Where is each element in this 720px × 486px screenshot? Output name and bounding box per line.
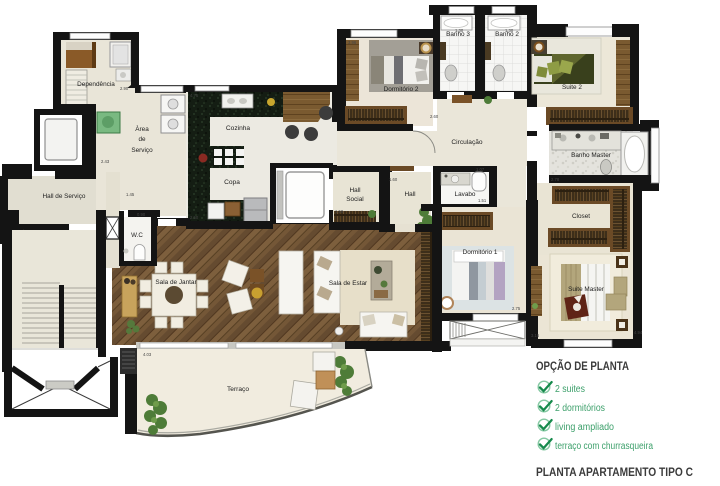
svg-text:Circulação: Circulação — [451, 139, 482, 146]
svg-text:Dependência: Dependência — [77, 81, 115, 88]
svg-text:OPÇÃO DE PLANTA: OPÇÃO DE PLANTA — [536, 360, 629, 373]
svg-text:2.90: 2.90 — [120, 86, 129, 91]
svg-text:1.07: 1.07 — [476, 167, 485, 172]
svg-text:living ampliado: living ampliado — [555, 422, 614, 433]
svg-text:Suite Master: Suite Master — [568, 286, 605, 293]
svg-text:Serviço: Serviço — [131, 147, 153, 154]
svg-text:Àrea: Àrea — [135, 124, 149, 133]
svg-text:2.78: 2.78 — [551, 177, 560, 182]
svg-text:PLANTA APARTAMENTO TIPO C: PLANTA APARTAMENTO TIPO C — [536, 465, 693, 479]
svg-text:Hall: Hall — [349, 187, 360, 194]
svg-text:Social: Social — [346, 196, 363, 203]
svg-text:0.90: 0.90 — [137, 212, 146, 217]
svg-text:Dormitório 2: Dormitório 2 — [384, 86, 419, 93]
svg-text:2.50: 2.50 — [190, 215, 199, 220]
svg-text:Hall: Hall — [404, 191, 415, 198]
svg-text:4.03: 4.03 — [143, 352, 152, 357]
svg-text:Sala de Estar: Sala de Estar — [329, 280, 368, 287]
svg-text:2 suites: 2 suites — [555, 384, 585, 395]
svg-text:Hall de Serviço: Hall de Serviço — [43, 193, 86, 200]
svg-text:Banho Master: Banho Master — [571, 152, 612, 159]
svg-text:2.60: 2.60 — [430, 114, 439, 119]
svg-text:Closet: Closet — [572, 213, 590, 220]
svg-text:de: de — [138, 136, 146, 143]
svg-text:Cozinha: Cozinha — [226, 125, 251, 132]
svg-text:1.51: 1.51 — [478, 198, 487, 203]
svg-text:Suite 2: Suite 2 — [562, 84, 582, 91]
svg-text:Lavabo: Lavabo — [455, 191, 476, 198]
svg-text:2.75: 2.75 — [512, 306, 521, 311]
svg-text:4.75: 4.75 — [190, 93, 199, 98]
svg-text:2 dormitórios: 2 dormitórios — [555, 403, 605, 414]
svg-text:1.45: 1.45 — [126, 192, 135, 197]
svg-text:2.43: 2.43 — [101, 159, 110, 164]
svg-text:3.96: 3.96 — [348, 40, 357, 45]
svg-text:Copa: Copa — [224, 179, 240, 186]
svg-text:terraço com churrasqueira: terraço com churrasqueira — [555, 441, 653, 452]
svg-text:4.94: 4.94 — [634, 330, 643, 335]
svg-text:Terraço: Terraço — [227, 386, 249, 393]
svg-text:W.C: W.C — [131, 232, 143, 239]
svg-text:Sala de Jantar: Sala de Jantar — [155, 279, 197, 286]
svg-text:1.60: 1.60 — [389, 177, 398, 182]
svg-text:1.50: 1.50 — [335, 209, 344, 214]
svg-text:3.16: 3.16 — [531, 333, 540, 338]
svg-text:1.30: 1.30 — [455, 28, 464, 33]
svg-text:1.30: 1.30 — [505, 28, 514, 33]
svg-text:Dormitório 1: Dormitório 1 — [463, 249, 498, 256]
